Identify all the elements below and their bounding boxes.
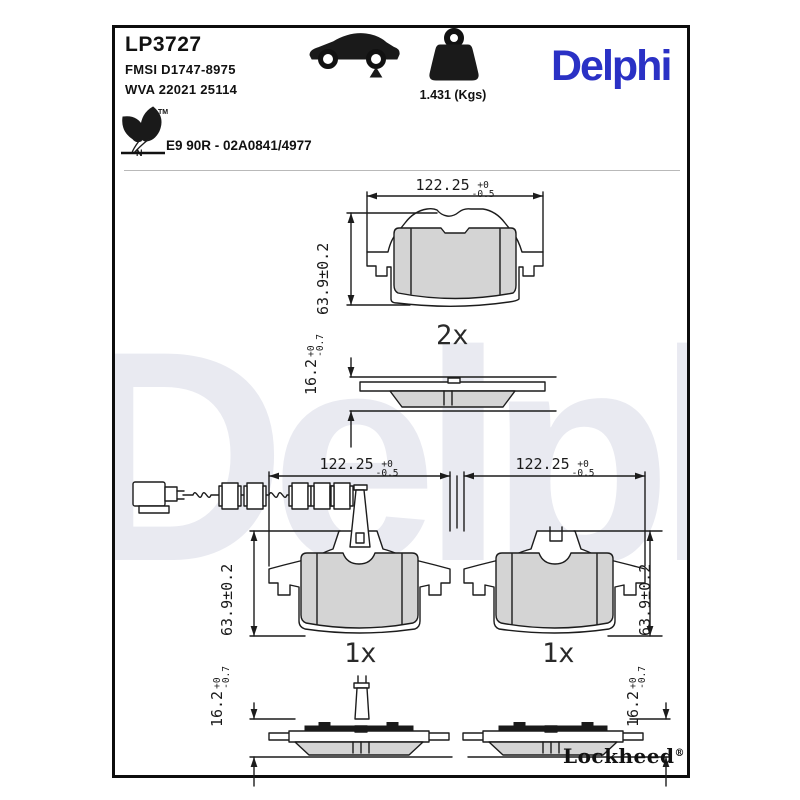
br-width-value: 122.25 xyxy=(515,455,569,473)
bottom-left-width-dim-label: 122.25+0-0.5 xyxy=(311,455,407,478)
top-thickness-value: 16.2 xyxy=(302,359,320,395)
bottom-right-width-dim-label: 122.25+0-0.5 xyxy=(507,455,603,478)
side-sensor-tower xyxy=(354,676,369,719)
lockheed-logo: Lockheed® xyxy=(560,744,688,768)
bottom-left-pad-side-view xyxy=(269,676,449,755)
bottom-left-quantity-label: 1x xyxy=(344,638,377,669)
top-thickness-dim-label: 16.2+0-0.7 xyxy=(302,334,325,395)
br-width-tol-minus: -0.5 xyxy=(572,469,595,478)
br-thickness-tol-minus: -0.7 xyxy=(638,666,647,689)
br-thickness-value: 16.2 xyxy=(624,691,642,727)
bl-thickness-tol-minus: -0.7 xyxy=(222,666,231,689)
bl-width-tol-minus: -0.5 xyxy=(376,469,399,478)
top-width-tol-minus: -0.5 xyxy=(472,190,495,199)
wear-sensor-wire xyxy=(133,482,353,513)
top-thickness-tol-minus: -0.7 xyxy=(316,334,325,357)
technical-drawing xyxy=(0,0,800,800)
bottom-right-height-dim-label: 63.9±0.2 xyxy=(636,564,654,636)
bottom-right-thickness-dim-label: 16.2+0-0.7 xyxy=(624,666,647,727)
bl-height-value: 63.9±0.2 xyxy=(218,564,236,636)
top-pad-back-view xyxy=(367,209,543,307)
bottom-right-pad-back-view xyxy=(464,527,645,633)
top-height-dim-label: 63.9±0.2 xyxy=(314,243,332,315)
bl-width-value: 122.25 xyxy=(319,455,373,473)
top-width-dim-label: 122.25+0-0.5 xyxy=(407,176,503,199)
bl-thickness-value: 16.2 xyxy=(208,691,226,727)
bottom-right-quantity-label: 1x xyxy=(542,638,575,669)
datasheet-page: Delphi LP3727 FMSI D1747-8975 WVA 22021 … xyxy=(0,0,800,800)
lockheed-text: Lockheed xyxy=(563,744,674,768)
top-pad-side-view xyxy=(360,378,545,407)
bottom-left-thickness-dim-label: 16.2+0-0.7 xyxy=(208,666,231,727)
br-height-value: 63.9±0.2 xyxy=(636,564,654,636)
top-height-value: 63.9±0.2 xyxy=(314,243,332,315)
top-width-value: 122.25 xyxy=(415,176,469,194)
top-quantity-label: 2x xyxy=(436,320,469,351)
registered-mark: ® xyxy=(674,748,685,759)
bottom-left-height-dim-label: 63.9±0.2 xyxy=(218,564,236,636)
